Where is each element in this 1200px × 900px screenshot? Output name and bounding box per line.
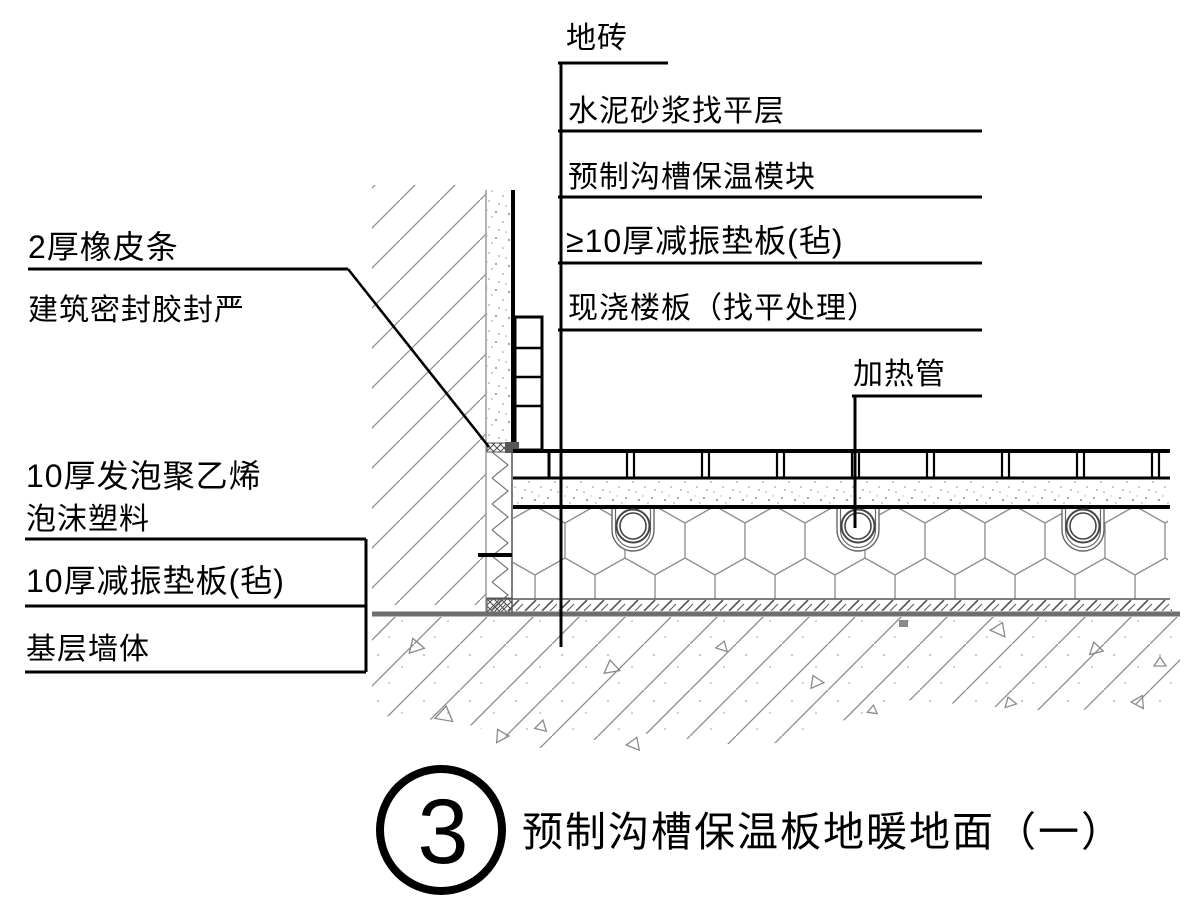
wall-hatch — [372, 185, 486, 605]
section-drawing: 地砖 水泥砂浆找平层 预制沟槽保温模块 ≥10厚减振垫板(毡) 现浇楼板（找平处… — [0, 0, 1200, 900]
detail-drawing-canvas: 地砖 水泥砂浆找平层 预制沟槽保温模块 ≥10厚减振垫板(毡) 现浇楼板（找平处… — [0, 0, 1200, 900]
label-floor-tile: 地砖 — [566, 22, 628, 55]
floor-tile-layer — [513, 451, 1170, 478]
label-heating-pipe: 加热管 — [853, 358, 946, 391]
heating-pipe — [837, 509, 879, 551]
slab-layer — [372, 617, 1180, 750]
detail-title: 预制沟槽保温板地暖地面（一） — [522, 809, 1124, 855]
heating-pipe — [612, 509, 654, 551]
label-insulation-module: 预制沟槽保温模块 — [568, 161, 816, 194]
damping-pad-layer — [372, 600, 1180, 614]
detail-number: 3 — [417, 781, 468, 883]
label-rubber-strip: 2厚橡皮条 — [28, 229, 179, 265]
mortar-layer — [513, 480, 1170, 507]
label-foam-line2: 泡沫塑料 — [26, 503, 150, 536]
title-block: 3 预制沟槽保温板地暖地面（一） — [380, 769, 1124, 891]
slab-hatch — [372, 617, 1180, 748]
label-base-wall: 基层墙体 — [26, 633, 150, 666]
label-foam-line1: 10厚发泡聚乙烯 — [26, 458, 262, 494]
label-mortar-leveling: 水泥砂浆找平层 — [568, 95, 785, 128]
label-damping-pad-left: 10厚减振垫板(毡) — [26, 563, 285, 599]
label-cast-slab: 现浇楼板（找平处理） — [568, 292, 878, 325]
skirting-blocks — [515, 317, 542, 450]
tile-joints — [627, 452, 1159, 478]
plaster-strip — [487, 190, 512, 444]
heating-pipe — [1062, 509, 1104, 551]
label-sealant: 建筑密封胶封严 — [28, 294, 245, 327]
label-damping-pad-right: ≥10厚减振垫板(毡) — [566, 223, 843, 259]
